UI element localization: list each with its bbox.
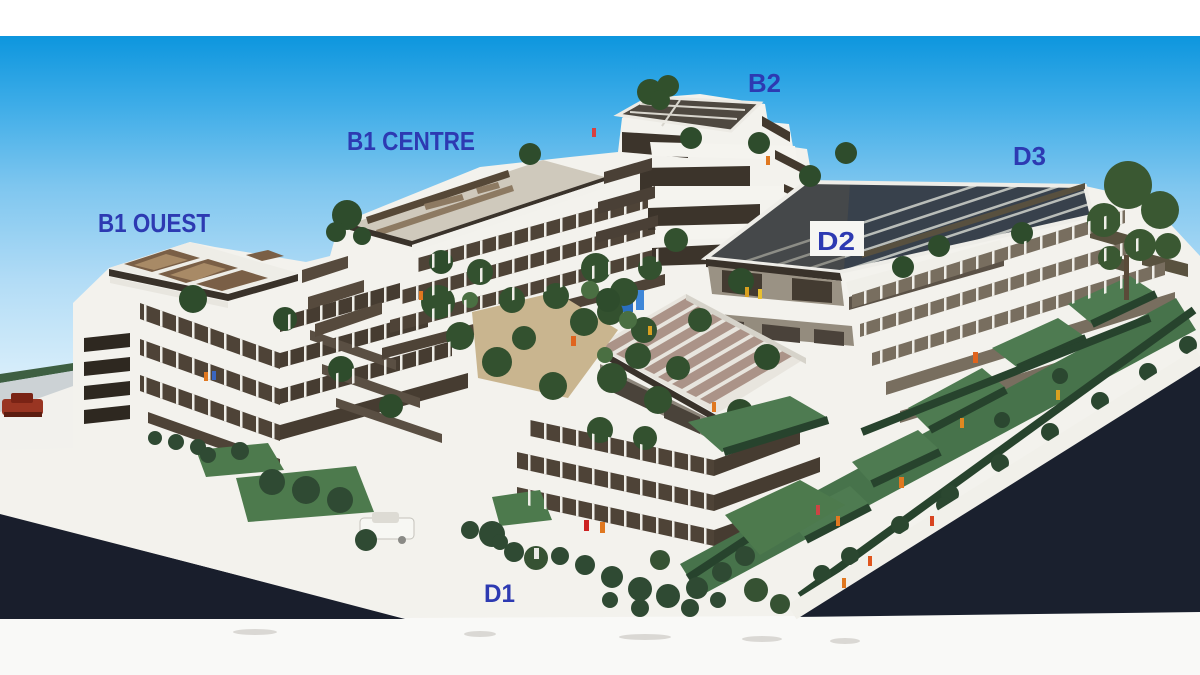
svg-text:D1: D1 xyxy=(484,580,515,608)
svg-text:D3: D3 xyxy=(1013,141,1046,171)
svg-text:B2: B2 xyxy=(748,68,781,98)
svg-text:B1 CENTRE: B1 CENTRE xyxy=(347,126,475,156)
svg-text:D2: D2 xyxy=(817,226,855,256)
svg-text:B1 OUEST: B1 OUEST xyxy=(98,208,210,238)
